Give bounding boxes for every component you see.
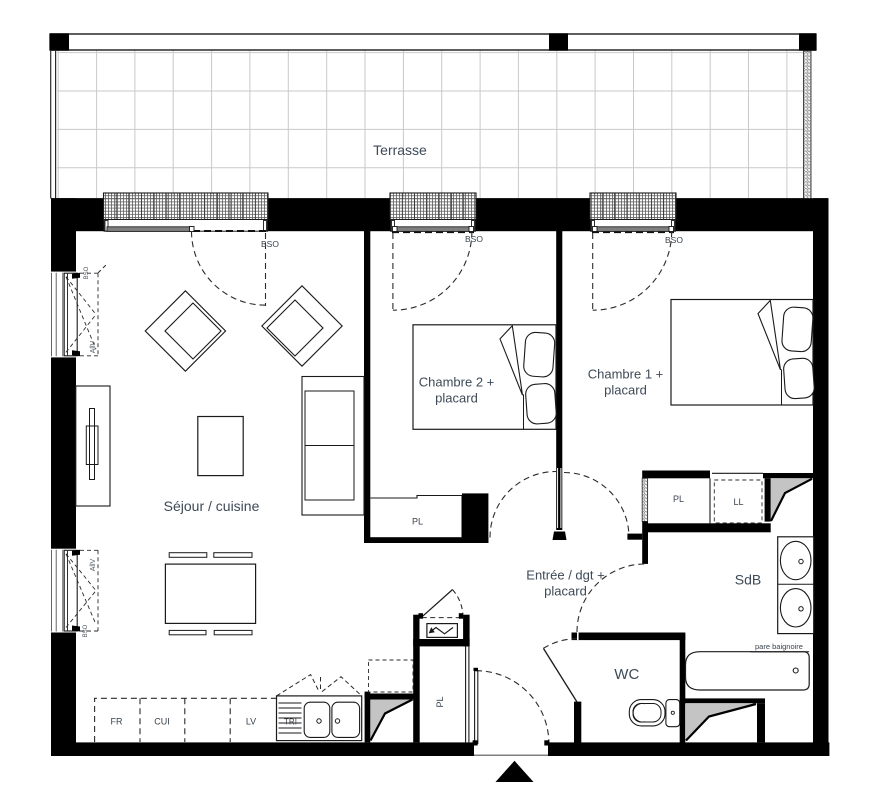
svg-text:TRI: TRI bbox=[284, 718, 297, 727]
svg-text:LV: LV bbox=[246, 717, 256, 727]
svg-text:AllV: AllV bbox=[90, 340, 97, 353]
svg-text:Terrasse: Terrasse bbox=[373, 142, 427, 158]
svg-text:PL: PL bbox=[412, 517, 423, 527]
svg-text:FR: FR bbox=[111, 717, 123, 727]
svg-text:placard: placard bbox=[604, 383, 647, 398]
svg-text:PL: PL bbox=[673, 494, 684, 504]
svg-text:PL: PL bbox=[435, 696, 445, 707]
svg-text:Entrée / dgt +: Entrée / dgt + bbox=[526, 568, 604, 583]
svg-text:WC: WC bbox=[614, 666, 639, 683]
svg-text:BSO: BSO bbox=[465, 234, 483, 244]
svg-text:pare baignoire: pare baignoire bbox=[755, 642, 803, 651]
svg-text:Séjour / cuisine: Séjour / cuisine bbox=[164, 498, 260, 514]
svg-text:LL: LL bbox=[733, 497, 743, 507]
svg-text:BSO: BSO bbox=[83, 624, 89, 637]
svg-text:CUI: CUI bbox=[154, 717, 170, 727]
svg-text:BSO: BSO bbox=[261, 239, 279, 249]
svg-text:placard: placard bbox=[435, 391, 478, 406]
svg-text:Chambre 1 +: Chambre 1 + bbox=[588, 367, 664, 382]
svg-text:BSO: BSO bbox=[84, 266, 90, 279]
svg-text:Chambre 2 +: Chambre 2 + bbox=[419, 375, 495, 390]
svg-text:SdB: SdB bbox=[735, 572, 761, 588]
svg-text:placard: placard bbox=[544, 584, 587, 599]
svg-text:BSO: BSO bbox=[665, 235, 683, 245]
svg-text:AllV: AllV bbox=[90, 558, 97, 571]
